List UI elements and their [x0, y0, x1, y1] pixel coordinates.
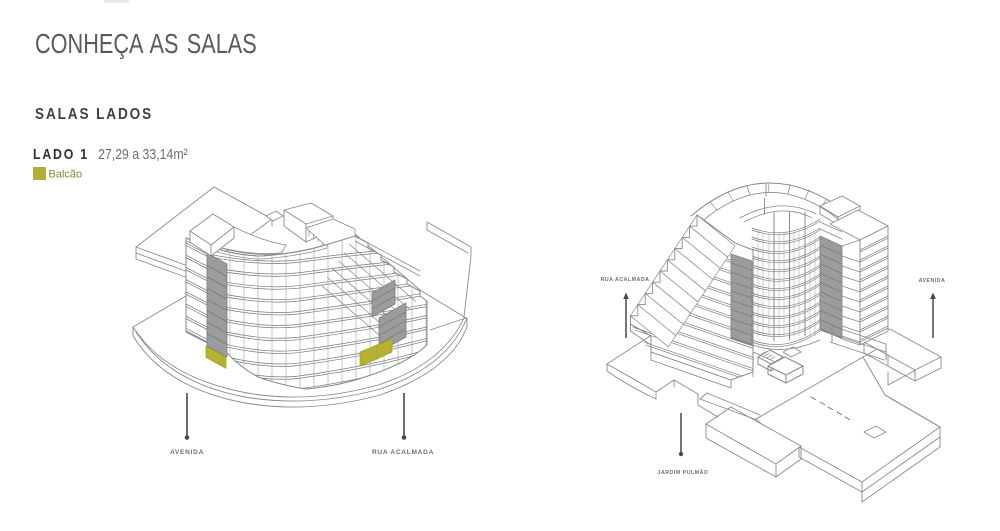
- svg-text:AVENIDA: AVENIDA: [170, 449, 204, 456]
- svg-text:RUA ACALMADA: RUA ACALMADA: [601, 277, 650, 283]
- svg-text:AVENIDA: AVENIDA: [919, 278, 946, 284]
- svg-text:JARDIM PULMÃO: JARDIM PULMÃO: [658, 469, 709, 476]
- svg-text:RUA ACALMADA: RUA ACALMADA: [372, 449, 434, 456]
